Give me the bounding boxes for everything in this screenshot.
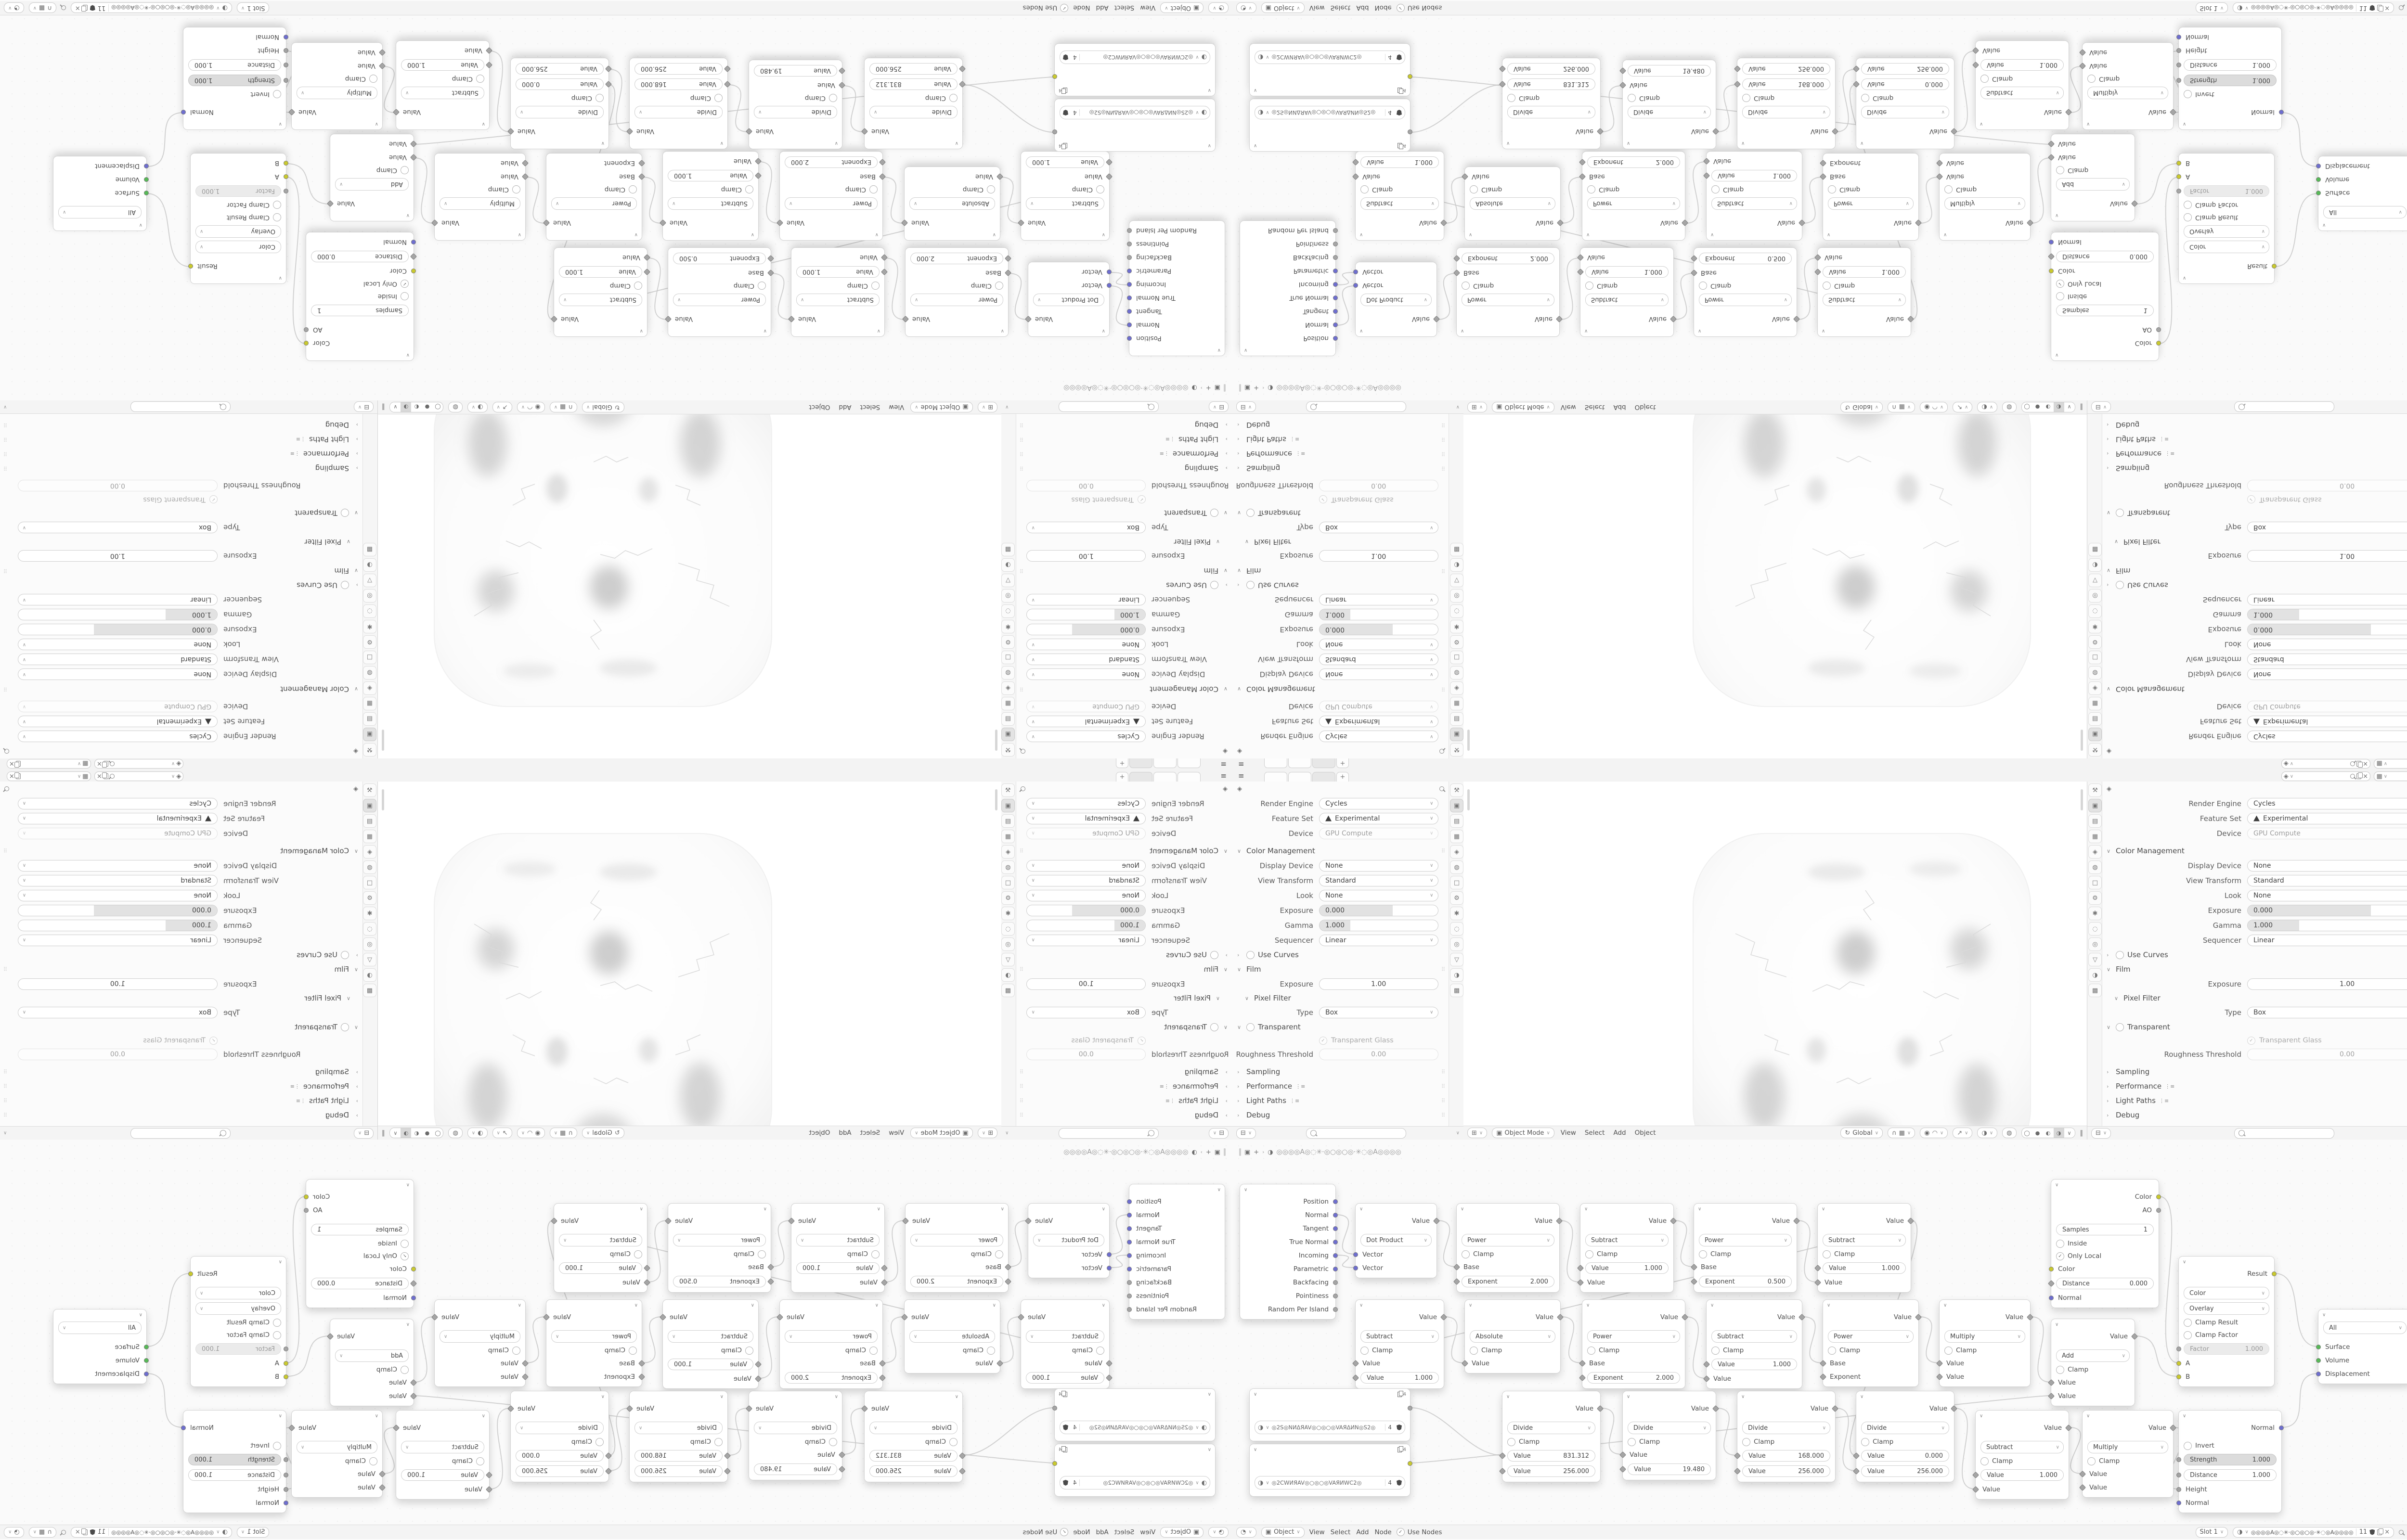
socket-volume[interactable]: [144, 1358, 149, 1363]
viewport-menu-select[interactable]: Select: [1583, 1129, 1606, 1137]
node-field-value[interactable]: Value19.480: [754, 1463, 837, 1475]
socket-incoming[interactable]: [1333, 282, 1338, 287]
socket-parametric[interactable]: [1127, 1267, 1132, 1271]
socket-normal[interactable]: [284, 1501, 288, 1505]
panel-checkbox[interactable]: [2116, 1023, 2124, 1031]
editor-type-button[interactable]: ⊞∨: [978, 1128, 997, 1138]
scene-name-field[interactable]: [116, 773, 170, 779]
socket-displacement[interactable]: [144, 1372, 149, 1376]
node-dropdown-absolute[interactable]: Absolute∨: [909, 197, 995, 210]
node-dropdown-divide[interactable]: Divide∨: [1628, 106, 1711, 118]
socket-color[interactable]: [2156, 1194, 2161, 1199]
prop-dropdown-display-device[interactable]: None∨: [2247, 669, 2407, 680]
node-addA[interactable]: ∨ValueAdd∨ClampValueValue: [2051, 1319, 2135, 1406]
node-link[interactable]: [728, 1408, 749, 1455]
workspace-tab[interactable]: [1129, 758, 1152, 768]
node-dropdown-dot-product[interactable]: Dot Product∨: [1360, 294, 1432, 306]
viewport-menu-add[interactable]: Add: [837, 403, 853, 411]
socket-surface[interactable]: [144, 191, 149, 195]
close-icon[interactable]: ×: [9, 773, 14, 780]
node-field-exponent[interactable]: Exponent0.500: [673, 253, 766, 264]
panel-header-sampling[interactable]: ›Sampling⠿: [0, 461, 363, 475]
workspace-tab[interactable]: [1288, 758, 1311, 768]
panel-toggle-icon[interactable]: ∨: [2107, 966, 2112, 973]
socket-random-per-island[interactable]: [1333, 1307, 1338, 1312]
panel-toggle-icon[interactable]: ›: [1222, 465, 1228, 472]
node-checkbox-clamp-result[interactable]: [273, 214, 281, 222]
properties-tab-tool[interactable]: ⚒: [1001, 743, 1015, 757]
node-field-value[interactable]: Value1.000: [1980, 1469, 2064, 1481]
search-input[interactable]: [130, 402, 231, 412]
node-field-value[interactable]: Value831.312: [869, 78, 958, 90]
collapse-chevron-icon[interactable]: ∨: [1469, 232, 1472, 238]
panel-toggle-icon[interactable]: ›: [1237, 422, 1243, 428]
material-datablock-selector[interactable]: ◑∨ ◎◎◎◎A◎◌✳·◎○◎○◎·✳◌◎A◎◎◎◎ 11 ×: [71, 1527, 232, 1538]
properties-tab-object[interactable]: □: [1450, 876, 1463, 889]
node-link[interactable]: [383, 66, 396, 113]
node-link[interactable]: [1336, 1215, 1355, 1254]
transform-orientation[interactable]: ↻Global∨: [1840, 402, 1883, 412]
proportional-editing[interactable]: ◉◠∨: [517, 402, 545, 412]
node-menu-node[interactable]: Node: [1374, 4, 1391, 12]
panel-toggle-icon[interactable]: ∨: [1237, 1024, 1243, 1030]
node-checkbox-clamp[interactable]: [369, 75, 377, 83]
collapse-chevron-icon[interactable]: ∨: [1244, 1187, 1247, 1193]
node-checkbox-clamp[interactable]: [401, 1366, 409, 1374]
panel-header-debug[interactable]: ›Debug⠿: [1016, 418, 1232, 432]
properties-tab-material[interactable]: ◑: [1450, 558, 1463, 572]
properties-tab-material[interactable]: ◑: [2088, 968, 2102, 982]
prop-dropdown-render-engine[interactable]: Cycles∨: [18, 731, 218, 743]
xray-toggle[interactable]: ◍: [449, 402, 463, 412]
node-dropdown-power[interactable]: Power∨: [1699, 294, 1792, 306]
node-link[interactable]: [1411, 1408, 1502, 1455]
prop-dropdown-device[interactable]: GPU Compute∨: [1319, 701, 1438, 713]
properties-tab-material[interactable]: ◑: [1450, 968, 1463, 982]
node-link[interactable]: [2275, 1273, 2318, 1347]
new-view-layer-icon[interactable]: [16, 761, 21, 767]
socket-b[interactable]: [284, 1374, 288, 1379]
node-link[interactable]: [1954, 51, 1975, 132]
collapse-chevron-icon[interactable]: ∨: [601, 1394, 605, 1399]
properties-tab-texture[interactable]: ▩: [1001, 984, 1015, 997]
socket-color[interactable]: [411, 269, 416, 273]
properties-tab-render[interactable]: ▣: [1450, 799, 1463, 812]
node-link[interactable]: [2069, 66, 2082, 113]
collapse-chevron-icon[interactable]: ∨: [2086, 122, 2090, 127]
collapse-chevron-icon[interactable]: ∨: [875, 1303, 879, 1308]
node-link[interactable]: [1110, 272, 1129, 285]
panel-header-transparent[interactable]: ∨Transparent: [1016, 1020, 1232, 1034]
panel-toggle-icon[interactable]: ∨: [1214, 539, 1220, 545]
collapse-chevron-icon[interactable]: ∨: [2183, 1413, 2186, 1419]
properties-tab-tool[interactable]: ⚒: [2088, 743, 2102, 757]
node-checkbox-only-local[interactable]: ✓: [2056, 280, 2064, 288]
prop-dropdown-sequencer[interactable]: Linear∨: [2247, 594, 2407, 606]
socket-normal[interactable]: [1127, 322, 1132, 327]
panel-header-use-curves[interactable]: ›Use Curves: [1016, 948, 1232, 962]
properties-tab-particles[interactable]: ✱: [1001, 907, 1015, 920]
prop-field-exposure[interactable]: 1.00: [18, 978, 218, 990]
node-dropdown-overlay[interactable]: Overlay∨: [2184, 225, 2269, 238]
group-datablock-selector[interactable]: ◑∨◎2S◎NИΔЯAV◎○◎○◎VAЯΔИN◎S2◎4: [1060, 1421, 1210, 1434]
socket-group[interactable]: [1052, 74, 1057, 79]
use-nodes-checkbox[interactable]: ✓Use Nodes: [1023, 4, 1069, 12]
prop-field-roughness-threshold[interactable]: 0.00: [1027, 480, 1146, 492]
node-powB[interactable]: ∨ValuePower∨ClampBaseExponent0.500: [668, 247, 771, 337]
node-mulB[interactable]: ∨ValueMultiply∨ClampValueValue: [291, 1410, 383, 1498]
panel-toggle-icon[interactable]: ∨: [1245, 995, 1251, 1001]
properties-tab-object-data[interactable]: ▽: [363, 953, 376, 966]
node-dropdown-power[interactable]: Power∨: [1462, 294, 1554, 306]
node-field-value[interactable]: Value1.000: [1026, 156, 1104, 168]
properties-tab-particles[interactable]: ✱: [1450, 620, 1463, 633]
use-nodes-checkbox[interactable]: ✓Use Nodes: [1397, 4, 1442, 12]
node-link[interactable]: [286, 1336, 330, 1376]
editor-type-button[interactable]: ⊟∨: [1236, 1128, 1256, 1139]
properties-tab-constraints[interactable]: ◎: [1001, 589, 1015, 603]
checkbox-transparent-glass[interactable]: ✓Transparent Glass: [2102, 493, 2407, 506]
properties-tab-output[interactable]: ▤: [2088, 712, 2102, 726]
properties-tab-tool[interactable]: ⚒: [1450, 743, 1463, 757]
overlays-dropdown[interactable]: ◑∨: [1977, 1128, 1997, 1138]
properties-tab-texture[interactable]: ▩: [2088, 543, 2102, 556]
collapse-chevron-icon[interactable]: ∨: [482, 1413, 485, 1419]
node-checkbox-clamp-factor[interactable]: [2184, 1331, 2192, 1339]
node-field-value[interactable]: Value1.000: [1585, 266, 1669, 278]
socket-vector[interactable]: [1107, 283, 1112, 288]
panel-header-sampling[interactable]: ›Sampling⠿: [1232, 1065, 1449, 1079]
node-field-value[interactable]: Value168.000: [1742, 78, 1830, 90]
properties-tab-texture[interactable]: ▩: [363, 984, 376, 997]
panel-toggle-icon[interactable]: ∨: [2107, 568, 2112, 574]
node-checkbox-clamp[interactable]: [1360, 186, 1369, 194]
node-link[interactable]: [2159, 1196, 2178, 1363]
close-icon[interactable]: ×: [97, 773, 102, 780]
node-link[interactable]: [771, 273, 791, 320]
new-workspace-tab-button[interactable]: +: [1336, 772, 1349, 782]
panel-header-performance[interactable]: ›Performance⋮≡⠿: [1016, 1079, 1232, 1093]
fake-user-shield-icon[interactable]: [2369, 5, 2375, 11]
node-powA[interactable]: ∨ValuePower∨ClampBaseExponent2.000: [905, 1203, 1009, 1293]
prop-dropdown-type[interactable]: Box∨: [2247, 1007, 2407, 1018]
node-b5[interactable]: ∨ValuePower∨ClampBaseExponent: [1823, 153, 1919, 241]
panel-header-film[interactable]: ∨Film⠿: [2102, 962, 2407, 976]
node-checkbox-clamp[interactable]: [1470, 1347, 1478, 1355]
node-menu-view[interactable]: View: [1309, 1528, 1325, 1536]
socket-tangent[interactable]: [1333, 1226, 1338, 1231]
prop-dropdown-render-engine[interactable]: Cycles∨: [1027, 798, 1146, 809]
panel-toggle-icon[interactable]: ›: [1237, 451, 1243, 457]
collapse-chevron-icon[interactable]: ∨: [1710, 1303, 1714, 1308]
node-field-value[interactable]: Value256.000: [869, 63, 958, 75]
node-dropdown-subtract[interactable]: Subtract∨: [401, 1441, 484, 1453]
node-field-exponent[interactable]: Exponent0.500: [673, 1276, 766, 1287]
shading-rendered[interactable]: ◑: [401, 402, 412, 412]
panel-header-color-management[interactable]: ∨Color Management⠿: [1232, 682, 1449, 696]
node-checkbox-clamp[interactable]: [2087, 1457, 2096, 1465]
collapse-chevron-icon[interactable]: ∨: [1586, 232, 1590, 238]
prop-dropdown-render-engine[interactable]: Cycles∨: [2247, 731, 2407, 743]
socket-distance[interactable]: [284, 1473, 288, 1477]
panel-toggle-icon[interactable]: ›: [352, 1083, 358, 1090]
node-link[interactable]: [526, 177, 546, 223]
socket-true-normal[interactable]: [1333, 295, 1338, 300]
panel-toggle-icon[interactable]: ∨: [1222, 848, 1228, 854]
node-field-value[interactable]: Value256.000: [516, 1465, 604, 1477]
socket-pointiness[interactable]: [1333, 1294, 1338, 1298]
panel-header-color-management[interactable]: ∨Color Management⠿: [2102, 682, 2407, 696]
socket-color[interactable]: [304, 1194, 309, 1199]
node-dropdown-subtract[interactable]: Subtract∨: [1026, 197, 1104, 210]
search-input[interactable]: [2234, 402, 2334, 412]
xray-toggle[interactable]: ◍: [449, 1128, 463, 1138]
node-field-samples[interactable]: Samples1: [311, 305, 409, 316]
node-dot[interactable]: ∨ValueDot Product∨VectorVector: [1355, 1203, 1437, 1278]
collapse-chevron-icon[interactable]: ∨: [1710, 232, 1714, 238]
node-divD[interactable]: ∨ValueDivide∨ClampValue0.000Value256.000: [1856, 1391, 1954, 1482]
properties-tab-physics[interactable]: ◌: [1450, 604, 1463, 618]
scrollbar[interactable]: [995, 730, 997, 751]
fake-user-shield-icon[interactable]: [90, 1529, 95, 1535]
collapse-chevron-icon[interactable]: ∨: [835, 141, 838, 146]
shading-material-preview[interactable]: ◐: [2043, 402, 2054, 412]
node-powB[interactable]: ∨ValuePower∨ClampBaseExponent0.500: [1694, 247, 1797, 337]
node-dropdown-divide[interactable]: Divide∨: [1507, 106, 1595, 118]
prop-dropdown-display-device[interactable]: None∨: [1027, 669, 1146, 680]
properties-tab-constraints[interactable]: ◎: [2088, 589, 2102, 603]
viewport-menu-view[interactable]: View: [887, 1129, 906, 1137]
panel-header-performance[interactable]: ›Performance⋮≡⠿: [1016, 447, 1232, 461]
editor-type-button[interactable]: ⊟∨: [1236, 402, 1256, 412]
collapse-chevron-icon[interactable]: ∨: [2086, 1413, 2090, 1419]
node-field-samples[interactable]: Samples1: [2056, 1224, 2154, 1235]
panel-toggle-icon[interactable]: ›: [1222, 582, 1228, 589]
node-field-value[interactable]: Value1.000: [559, 1262, 642, 1274]
properties-tab-constraints[interactable]: ◎: [1001, 937, 1015, 951]
node-checkbox-invert[interactable]: [273, 90, 281, 99]
node-link[interactable]: [286, 1196, 306, 1363]
panel-toggle-icon[interactable]: ∨: [2107, 848, 2112, 854]
panel-toggle-icon[interactable]: ∨: [2114, 995, 2120, 1001]
shading-solid[interactable]: ●: [422, 402, 433, 412]
group-datablock-selector[interactable]: ◑∨◎2S◎NИΔЯAV◎○◎○◎VAЯΔИN◎S2◎4: [1255, 106, 1405, 119]
close-icon[interactable]: ×: [2363, 773, 2368, 780]
node-b5[interactable]: ∨ValuePower∨ClampBaseExponent: [546, 153, 642, 241]
node-link[interactable]: [286, 164, 330, 204]
node-dropdown-power[interactable]: Power∨: [1462, 1234, 1554, 1246]
scene-selector[interactable]: ◈∨ ×: [2281, 771, 2370, 781]
workspace-tab[interactable]: [1178, 758, 1201, 768]
socket-color[interactable]: [2049, 1267, 2054, 1271]
node-checkbox-clamp[interactable]: [949, 94, 958, 103]
node-dropdown-divide[interactable]: Divide∨: [634, 1422, 723, 1434]
panel-toggle-icon[interactable]: ∨: [1222, 568, 1228, 574]
node-dropdown-multiply[interactable]: Multiply∨: [297, 87, 377, 99]
node-dropdown-divide[interactable]: Divide∨: [516, 1422, 604, 1434]
node-dropdown-divide[interactable]: Divide∨: [634, 106, 723, 118]
node-field-value[interactable]: Value168.000: [1742, 1450, 1830, 1462]
node-geo[interactable]: ∨PositionNormalTangentTrue NormalIncomin…: [1240, 220, 1336, 356]
socket-surface[interactable]: [144, 1345, 149, 1349]
socket-height[interactable]: [2176, 1487, 2181, 1492]
transform-orientation[interactable]: ↻Global∨: [1840, 1128, 1883, 1138]
node-matout[interactable]: ∨All∨SurfaceVolumeDisplacement: [2318, 1309, 2407, 1384]
prop-dropdown-device[interactable]: GPU Compute∨: [2247, 828, 2407, 839]
socket-vector[interactable]: [1353, 283, 1358, 288]
scrollbar[interactable]: [995, 789, 997, 810]
node-dropdown-power[interactable]: Power∨: [1699, 1234, 1792, 1246]
prop-field-roughness-threshold[interactable]: 0.00: [18, 480, 218, 492]
close-icon[interactable]: ×: [2363, 761, 2368, 767]
socket-group[interactable]: [1052, 129, 1057, 134]
node-field-factor[interactable]: Factor1.000: [195, 1343, 281, 1355]
node-field-value[interactable]: Value1.000: [668, 170, 753, 181]
node-field-value[interactable]: Value1.000: [1360, 1372, 1439, 1384]
socket-a[interactable]: [2176, 1361, 2181, 1366]
hamburger-icon[interactable]: ≡: [1220, 772, 1227, 780]
node-field-value[interactable]: Value831.312: [1507, 1450, 1595, 1462]
panel-header-debug[interactable]: ›Debug⠿: [0, 418, 363, 432]
prop-dropdown-look[interactable]: None∨: [2247, 639, 2407, 651]
prop-dropdown-look[interactable]: None∨: [1027, 639, 1146, 651]
node-field-exponent[interactable]: Exponent0.500: [1699, 1276, 1792, 1287]
prop-dropdown-type[interactable]: Box∨: [1027, 522, 1146, 534]
node-divC[interactable]: ∨ValueDivide∨ClampValue168.000Value256.0…: [1737, 58, 1836, 149]
panel-checkbox[interactable]: [1246, 509, 1255, 517]
group-datablock-selector[interactable]: ◑∨◎2S◎NИΔЯAV◎○◎○◎VAЯΔИN◎S2◎4: [1060, 106, 1210, 119]
shading-solid[interactable]: ●: [2032, 402, 2043, 412]
node-link[interactable]: [2282, 113, 2318, 167]
viewport-3d[interactable]: ⊞∨ ▣Object Mode∨ ViewSelectAddObject ↻Gl…: [378, 400, 1001, 758]
socket-normal[interactable]: [411, 1296, 416, 1300]
node-dropdown-subtract[interactable]: Subtract∨: [1026, 1330, 1104, 1343]
prop-dropdown-sequencer[interactable]: Linear∨: [1027, 935, 1146, 946]
shading-dropdown[interactable]: ∨: [2064, 1128, 2075, 1138]
shading-wireframe[interactable]: ◯: [433, 1128, 443, 1138]
socket-normal[interactable]: [2049, 240, 2054, 244]
node-checkbox-clamp[interactable]: [512, 186, 520, 194]
node-link[interactable]: [2159, 177, 2178, 344]
node-dropdown-subtract[interactable]: Subtract∨: [1585, 1234, 1669, 1246]
node-powB[interactable]: ∨ValuePower∨ClampBaseExponent0.500: [1694, 1203, 1797, 1293]
panel-header-film[interactable]: ∨Film⠿: [1016, 564, 1232, 578]
collapse-chevron-icon[interactable]: ∨: [1359, 232, 1363, 238]
scrollbar[interactable]: [382, 789, 384, 810]
prop-field-exposure[interactable]: 1.00: [2247, 978, 2407, 990]
socket-vector[interactable]: [1107, 1266, 1112, 1270]
node-dropdown-subtract[interactable]: Subtract∨: [668, 197, 753, 210]
properties-tab-object-data[interactable]: ▽: [2088, 574, 2102, 587]
node-link[interactable]: [2031, 1317, 2051, 1382]
node-dropdown-power[interactable]: Power∨: [785, 1330, 878, 1343]
properties-tab-world[interactable]: ◍: [1001, 860, 1015, 874]
collapse-chevron-icon[interactable]: ∨: [1244, 348, 1247, 353]
node-checkbox-clamp[interactable]: [829, 94, 837, 103]
socket-normal[interactable]: [181, 1425, 186, 1430]
panel-header-pixel-filter[interactable]: ∨Pixel Filter: [1232, 535, 1449, 549]
properties-tab-physics[interactable]: ◌: [1450, 922, 1463, 936]
collapse-chevron-icon[interactable]: ∨: [1584, 1206, 1588, 1212]
prop-dropdown-device[interactable]: GPU Compute∨: [18, 828, 218, 839]
panel-checkbox[interactable]: [1246, 581, 1255, 590]
node-subE[interactable]: ∨ValueSubtract∨ClampValue1.000Value: [1975, 40, 2069, 130]
panel-header-transparent[interactable]: ∨Transparent: [2102, 506, 2407, 520]
viewport-menu-select[interactable]: Select: [859, 403, 882, 411]
collapse-chevron-icon[interactable]: ∨: [1627, 141, 1630, 146]
socket-random-per-island[interactable]: [1127, 228, 1132, 233]
socket-color[interactable]: [2156, 341, 2161, 346]
collapse-chevron-icon[interactable]: ∨: [2322, 1312, 2326, 1318]
node-subA[interactable]: ∨ValueSubtract∨ClampValue1.000Value: [791, 1203, 885, 1293]
socket-volume[interactable]: [144, 177, 149, 182]
node-checkbox-clamp-result[interactable]: [2184, 214, 2192, 222]
node-checkbox-clamp-factor[interactable]: [2184, 201, 2192, 209]
shading-rendered[interactable]: ◑: [401, 1128, 412, 1138]
node-link[interactable]: [383, 1427, 396, 1474]
collapse-chevron-icon[interactable]: ∨: [1001, 1206, 1004, 1212]
properties-tab-object[interactable]: □: [2088, 876, 2102, 889]
pin-icon[interactable]: [4, 749, 9, 754]
node-divB[interactable]: ∨ValueDivide∨ClampValueValue19.480: [749, 60, 842, 149]
socket-normal[interactable]: [1333, 1213, 1338, 1218]
node-link[interactable]: [1110, 1255, 1129, 1268]
node-link[interactable]: [1336, 286, 1355, 325]
node-field-exponent[interactable]: Exponent0.500: [1699, 253, 1792, 264]
properties-tab-modifiers[interactable]: ⚙: [1001, 891, 1015, 905]
node-b6[interactable]: ∨ValueMultiply∨ClampValueValue: [434, 1299, 526, 1387]
group-datablock-selector[interactable]: ◑∨◎2S◎NИΔЯAV◎○◎○◎VAЯΔИN◎S2◎4: [1255, 1421, 1405, 1434]
prop-dropdown-device[interactable]: GPU Compute∨: [1319, 828, 1438, 839]
new-workspace-tab-button[interactable]: +: [1116, 758, 1128, 768]
panel-toggle-icon[interactable]: ∨: [2107, 510, 2112, 516]
socket-vector[interactable]: [1353, 1266, 1358, 1270]
node-field-factor[interactable]: Factor1.000: [195, 185, 281, 197]
panel-header-debug[interactable]: ›Debug⠿: [0, 1108, 363, 1122]
node-link[interactable]: [642, 177, 662, 223]
shading-rendered[interactable]: ◑: [2054, 1128, 2064, 1138]
collapse-chevron-icon[interactable]: ∨: [1254, 143, 1257, 149]
socket-factor[interactable]: [2176, 189, 2181, 193]
gizmo-dropdown[interactable]: ↗∨: [492, 402, 512, 412]
transform-orientation[interactable]: ↻Global∨: [582, 402, 624, 412]
node-checkbox-clamp[interactable]: [476, 1457, 484, 1465]
node-link[interactable]: [2031, 158, 2051, 223]
prop-dropdown-look[interactable]: None∨: [2247, 890, 2407, 901]
node-field-value[interactable]: Value256.000: [1507, 1465, 1595, 1477]
node-field-value[interactable]: Value0.000: [1861, 1450, 1949, 1462]
node-divD[interactable]: ∨ValueDivide∨ClampValue0.000Value256.000: [510, 1391, 609, 1482]
prop-dropdown-display-device[interactable]: None∨: [18, 860, 218, 872]
properties-tab-physics[interactable]: ◌: [2088, 922, 2102, 936]
properties-tab-modifiers[interactable]: ⚙: [1001, 635, 1015, 649]
node-link[interactable]: [1601, 1408, 1622, 1454]
socket-a[interactable]: [284, 174, 288, 179]
node-dropdown-divide[interactable]: Divide∨: [754, 1422, 837, 1434]
socket-tangent[interactable]: [1333, 309, 1338, 314]
node-g2[interactable]: ∨4◑∨◎2CWИЯAV◎○◎○◎VAЯИWC2◎4: [1249, 1444, 1411, 1497]
socket-factor[interactable]: [284, 1347, 288, 1351]
overlays-dropdown[interactable]: ◔∨: [4, 3, 24, 13]
properties-tab-particles[interactable]: ✱: [1001, 620, 1015, 633]
new-scene-icon[interactable]: [2356, 761, 2361, 767]
panel-toggle-icon[interactable]: ›: [1237, 1069, 1243, 1075]
collapse-chevron-icon[interactable]: ∨: [751, 232, 754, 238]
xray-toggle[interactable]: ◍: [2002, 402, 2016, 412]
node-link[interactable]: [414, 158, 434, 223]
gizmo-dropdown[interactable]: ↗∨: [1953, 1128, 1972, 1138]
node-dropdown-power[interactable]: Power∨: [673, 1234, 766, 1246]
